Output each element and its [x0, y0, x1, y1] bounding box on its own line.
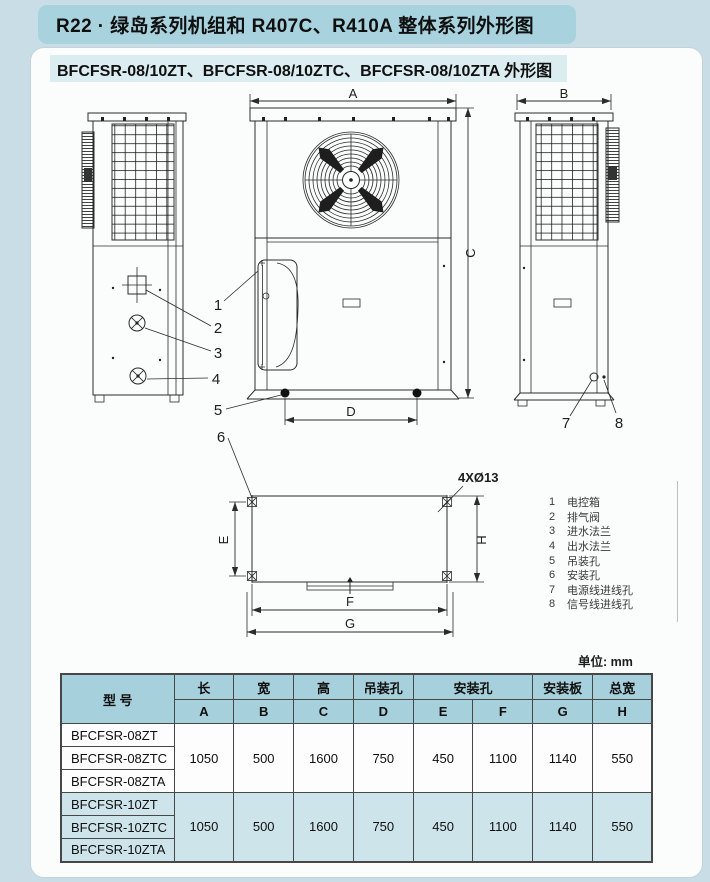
fan-guard [303, 132, 399, 228]
callout-1: 1 [214, 297, 222, 314]
scan-fold-line [677, 481, 678, 622]
value-f: 1100 [473, 793, 533, 862]
air-grille [536, 124, 598, 240]
front-view [247, 108, 459, 399]
air-grille [112, 124, 174, 240]
legend-item-label: 电源线进线孔 [567, 582, 633, 598]
value-a: 1050 [174, 724, 234, 793]
legend-item-number: 7 [546, 584, 558, 596]
parts-legend: 1 电控箱 2 排气阀 3 进水法兰 4 出水法兰 5 吊装孔 6 安装孔 7 … [546, 495, 633, 612]
table-header-row-groups: 型 号 长 宽 高 吊装孔 安装孔 安装板 总宽 [61, 674, 652, 700]
callout-8: 8 [615, 415, 623, 432]
col-header-width: 宽 [234, 674, 294, 700]
col-header-height: 高 [294, 674, 354, 700]
value-d: 750 [353, 793, 413, 862]
unit-label: 单位: mm [578, 651, 633, 670]
col-header-total-width: 总宽 [593, 674, 653, 700]
drawing-subtitle-bar: BFCFSR-08/10ZT、BFCFSR-08/10ZTC、BFCFSR-08… [50, 55, 567, 82]
value-c: 1600 [294, 793, 354, 862]
value-d: 750 [353, 724, 413, 793]
col-letter-c: C [294, 700, 354, 724]
legend-item-label: 安装孔 [567, 567, 600, 583]
dim-label-a: A [349, 86, 358, 101]
legend-item: 8 信号线进线孔 [546, 597, 633, 612]
feet [95, 395, 179, 402]
value-b: 500 [234, 793, 294, 862]
col-letter-d: D [353, 700, 413, 724]
mounting-holes [248, 495, 452, 583]
table-row: BFCFSR-10ZT 1050 500 1600 750 450 1100 1… [61, 793, 652, 816]
legend-item: 7 电源线进线孔 [546, 583, 633, 598]
side-view-left [82, 113, 186, 402]
value-g: 1140 [533, 793, 593, 862]
side-view-right [514, 113, 619, 406]
col-header-model: 型 号 [61, 674, 174, 724]
lifting-hole-bolt [413, 389, 422, 398]
col-header-lifting-hole: 吊装孔 [353, 674, 413, 700]
model-cell: BFCFSR-10ZT [61, 793, 174, 816]
model-group-10: BFCFSR-10ZT 1050 500 1600 750 450 1100 1… [61, 793, 652, 862]
value-a: 1050 [174, 793, 234, 862]
col-header-mounting-hole: 安装孔 [413, 674, 533, 700]
callout-2: 2 [214, 320, 222, 337]
value-h: 550 [593, 724, 653, 793]
col-letter-b: B [234, 700, 294, 724]
legend-item-label: 信号线进线孔 [567, 596, 633, 612]
page-title-bar: R22 · 绿岛系列机组和 R407C、R410A 整体系列外形图 [38, 5, 576, 44]
dim-B: B [517, 86, 611, 110]
callout-4: 4 [212, 371, 220, 388]
legend-item: 1 电控箱 [546, 495, 633, 510]
callout-7: 7 [562, 415, 570, 432]
legend-item-number: 4 [546, 540, 558, 552]
model-cell: BFCFSR-10ZTA [61, 839, 174, 862]
legend-item: 4 出水法兰 [546, 539, 633, 554]
bottom-view [248, 495, 452, 594]
signal-wire-hole [602, 375, 605, 378]
legend-item-number: 3 [546, 525, 558, 537]
dim-E: E [216, 502, 246, 576]
legend-item-number: 2 [546, 511, 558, 523]
col-header-mounting-plate: 安装板 [533, 674, 593, 700]
legend-item-label: 排气阀 [567, 509, 600, 525]
col-letter-e: E [413, 700, 473, 724]
table-row: BFCFSR-08ZT 1050 500 1600 750 450 1100 1… [61, 724, 652, 747]
value-e: 450 [413, 724, 473, 793]
model-cell: BFCFSR-10ZTC [61, 816, 174, 839]
electrical-control-box [258, 260, 298, 370]
water-inlet-flange [129, 315, 145, 331]
legend-item: 3 进水法兰 [546, 524, 633, 539]
legend-item-number: 1 [546, 496, 558, 508]
dim-label-f: F [346, 594, 354, 609]
col-letter-h: H [593, 700, 653, 724]
drawing-subtitle: BFCFSR-08/10ZT、BFCFSR-08/10ZTC、BFCFSR-08… [57, 57, 552, 81]
dim-label-d: D [346, 404, 355, 419]
legend-item-label: 电控箱 [567, 494, 600, 510]
dim-H: H [449, 496, 489, 582]
model-cell: BFCFSR-08ZTC [61, 747, 174, 770]
nameplate [554, 299, 571, 307]
value-b: 500 [234, 724, 294, 793]
model-cell: BFCFSR-08ZTA [61, 770, 174, 793]
panel-screws [443, 265, 445, 363]
discharge-valve-symbol [122, 267, 152, 303]
side-fin-panel [606, 128, 619, 222]
model-cell: BFCFSR-08ZT [61, 724, 174, 747]
side-fin-panel [82, 132, 94, 228]
screw-ticks [262, 117, 450, 121]
dim-D: D [285, 398, 417, 425]
col-letter-f: F [473, 700, 533, 724]
callout-5: 5 [214, 402, 222, 419]
dim-label-c: C [463, 248, 478, 257]
legend-item: 5 吊装孔 [546, 553, 633, 568]
col-letter-a: A [174, 700, 234, 724]
model-group-08: BFCFSR-08ZT 1050 500 1600 750 450 1100 1… [61, 724, 652, 793]
scanned-manual-page: R22 · 绿岛系列机组和 R407C、R410A 整体系列外形图 BFCFSR… [0, 0, 710, 882]
dim-label-g: G [345, 616, 355, 631]
mounting-bracket [307, 577, 393, 594]
col-letter-g: G [533, 700, 593, 724]
base [514, 393, 614, 406]
page-title: R22 · 绿岛系列机组和 R407C、R410A 整体系列外形图 [56, 11, 534, 38]
legend-item-label: 进水法兰 [567, 523, 611, 539]
dimension-table: 型 号 长 宽 高 吊装孔 安装孔 安装板 总宽 A B C D E F G H [60, 673, 653, 863]
nameplate [343, 299, 360, 307]
legend-item-number: 8 [546, 598, 558, 610]
value-f: 1100 [473, 724, 533, 793]
legend-item: 2 排气阀 [546, 510, 633, 525]
value-e: 450 [413, 793, 473, 862]
value-c: 1600 [294, 724, 354, 793]
dim-A: A [250, 86, 456, 110]
value-h: 550 [593, 793, 653, 862]
legend-item-label: 出水法兰 [567, 538, 611, 554]
legend-item-number: 5 [546, 555, 558, 567]
panel-screws [523, 267, 525, 361]
dim-label-b: B [560, 86, 569, 101]
legend-item: 6 安装孔 [546, 568, 633, 583]
screw-ticks [526, 117, 595, 121]
dim-label-h: H [474, 535, 489, 544]
callout-3: 3 [214, 345, 222, 362]
dim-C: C [456, 108, 478, 398]
lifting-hole-bolt [281, 389, 290, 398]
legend-item-number: 6 [546, 569, 558, 581]
dim-label-e: E [216, 535, 231, 544]
water-outlet-flange [130, 368, 146, 384]
callout-numbers: 1 2 3 4 5 6 7 8 [212, 297, 623, 446]
hole-note-text: 4XØ13 [458, 470, 498, 485]
screw-ticks [101, 117, 170, 121]
legend-item-label: 吊装孔 [567, 553, 600, 569]
col-header-length: 长 [174, 674, 234, 700]
callout-6: 6 [217, 429, 225, 446]
value-g: 1140 [533, 724, 593, 793]
